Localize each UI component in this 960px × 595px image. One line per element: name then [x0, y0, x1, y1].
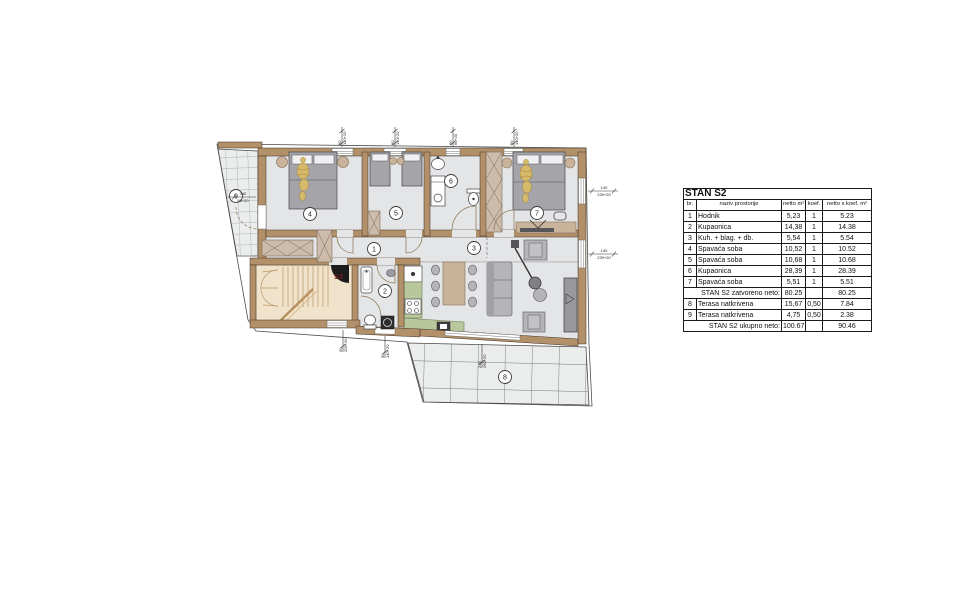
svg-text:140: 140	[601, 185, 608, 190]
table-subtotal-row: STAN S2 zatvoreno neto:80.2580.25	[684, 288, 872, 299]
svg-text:60+20: 60+20	[453, 133, 458, 145]
table-title: STAN S2	[684, 189, 872, 200]
table-row: 6Kupaonica28,39128.39	[684, 266, 872, 277]
svg-text:2: 2	[383, 289, 387, 296]
dining-table-icon	[443, 262, 465, 305]
nightstand-icon	[397, 158, 404, 165]
table-row: 7Spavaća soba5,5115.51	[684, 277, 872, 288]
svg-text:239+20: 239+20	[597, 192, 611, 197]
svg-text:260+20: 260+20	[482, 354, 487, 368]
nightstand-icon	[277, 157, 288, 168]
table-row: 1Hodnik5,2315.23	[684, 211, 872, 222]
apartment-label: S2	[334, 272, 343, 281]
chair-icon	[469, 281, 477, 291]
area-table: STAN S2 br. naziv prostorije netto m² ko…	[683, 188, 872, 332]
chair-icon	[469, 265, 477, 275]
terrace-8	[408, 343, 589, 405]
svg-text:4: 4	[308, 212, 312, 219]
nightstand-icon	[390, 158, 397, 165]
armchair-icon	[523, 312, 545, 332]
svg-text:240: 240	[240, 191, 247, 196]
table-title-row: STAN S2	[684, 189, 872, 200]
sink-icon	[432, 159, 445, 170]
svg-text:140+20: 140+20	[514, 131, 519, 145]
nightstand-icon	[565, 158, 575, 168]
svg-text:3: 3	[472, 246, 476, 253]
svg-text:140+20: 140+20	[342, 131, 347, 145]
svg-text:80+20: 80+20	[237, 198, 249, 203]
svg-text:205+20: 205+20	[343, 338, 348, 352]
svg-text:239+20: 239+20	[597, 255, 611, 260]
chair-icon	[432, 265, 440, 275]
table-grand-row: STAN S2 ukupno neto:100.6790.46	[684, 321, 872, 332]
svg-text:7: 7	[535, 211, 539, 218]
table-row: 9Terasa natkrivena4,750,502.38	[684, 310, 872, 321]
svg-text:140+20: 140+20	[385, 344, 390, 358]
svg-text:140+20: 140+20	[395, 131, 400, 145]
nightstand-icon	[502, 158, 512, 168]
chair-icon	[469, 297, 477, 307]
table-row: 3Kuh. + blag. + db.5,5415.54	[684, 233, 872, 244]
chair-icon	[432, 281, 440, 291]
toilet-icon	[364, 315, 376, 329]
svg-text:5: 5	[394, 211, 398, 218]
svg-text:8: 8	[503, 375, 507, 382]
washer-icon	[431, 176, 445, 206]
table-row: 4Spavaća soba10,52110.52	[684, 244, 872, 255]
table-header-row: br. naziv prostorije netto m² koef. nett…	[684, 200, 872, 211]
armchair-icon	[524, 240, 547, 260]
page: 1 2 3 4 5 6 7 8 9 S2 90 140+20 90 140+20…	[0, 0, 960, 595]
coffee-table-icon	[534, 289, 547, 302]
parapet-band	[218, 142, 262, 148]
chair-icon	[432, 297, 440, 307]
sofa-icon	[487, 262, 512, 316]
svg-text:140: 140	[601, 248, 608, 253]
stove-icon	[405, 299, 421, 314]
sink-icon	[387, 270, 396, 277]
tv-cabinet-icon	[564, 278, 577, 332]
washer-icon	[381, 316, 394, 329]
table-row: 5Spavaća soba10,68110.68	[684, 255, 872, 266]
svg-text:1: 1	[372, 247, 376, 254]
table-row: 8Terasa natkrivena15,670,507.84	[684, 299, 872, 310]
svg-text:6: 6	[449, 179, 453, 186]
nightstand-icon	[338, 157, 349, 168]
table-row: 2Kupaonica14,38114.38	[684, 222, 872, 233]
